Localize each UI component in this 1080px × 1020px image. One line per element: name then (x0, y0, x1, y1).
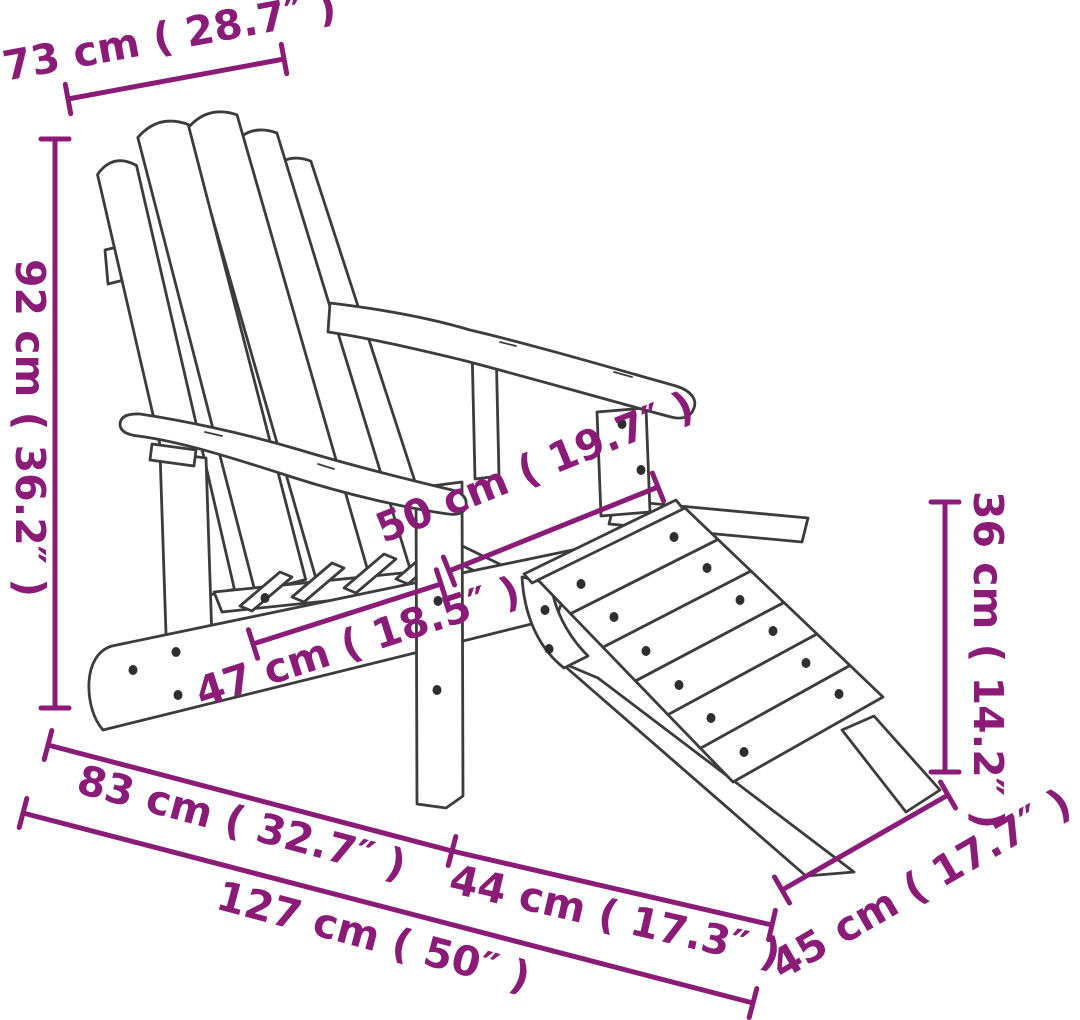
dim-label-chair-height: 92 cm ( 36.2″ ) (6, 259, 54, 597)
dimension-diagram: 73 cm ( 28.7″ ) 92 cm ( 36.2″ ) 50 cm ( … (0, 0, 1080, 1020)
dimension-chair-depth: 83 cm ( 32.7″ ) (44, 731, 456, 890)
dim-label-backrest-width: 73 cm ( 28.7″ ) (0, 0, 340, 91)
dim-label-stool-height: 36 cm ( 14.2″ ) (964, 491, 1012, 829)
dimension-stool-height: 36 cm ( 14.2″ ) (931, 491, 1012, 829)
stool-rear-leg (842, 716, 940, 812)
diagram-canvas: 73 cm ( 28.7″ ) 92 cm ( 36.2″ ) 50 cm ( … (0, 0, 1080, 1020)
front-left-leg (160, 452, 212, 640)
footstool-drawing (522, 500, 940, 876)
dimension-stool-width: 45 cm ( 17.7″ ) (763, 779, 1080, 990)
dimension-chair-height: 92 cm ( 36.2″ ) (6, 139, 69, 708)
dimension-backrest-width: 73 cm ( 28.7″ ) (0, 0, 340, 114)
